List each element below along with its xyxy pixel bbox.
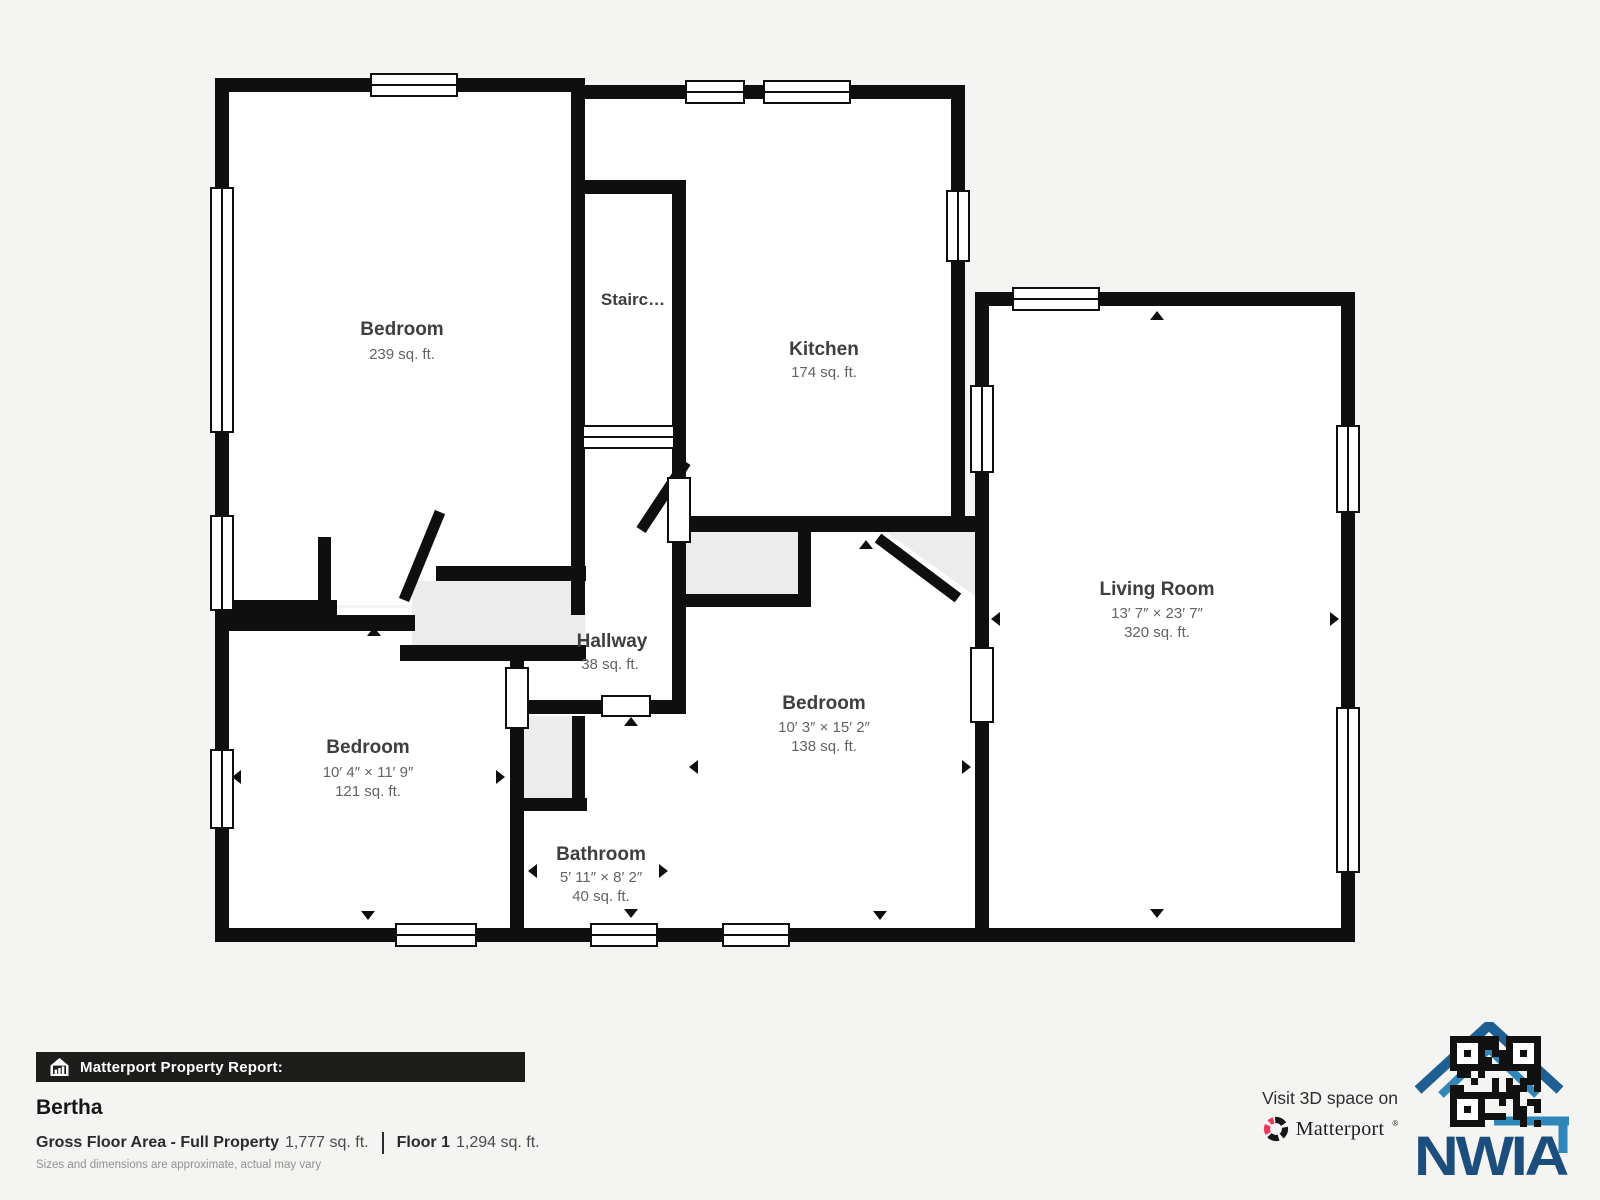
- gross-area-value: 1,777 sq. ft.: [285, 1134, 369, 1152]
- floor1-value: 1,294 sq. ft.: [456, 1134, 540, 1152]
- svg-text:Bathroom: Bathroom: [556, 844, 646, 865]
- svg-text:239 sq. ft.: 239 sq. ft.: [369, 346, 435, 363]
- svg-text:13′ 7″ × 23′ 7″: 13′ 7″ × 23′ 7″: [1111, 605, 1203, 622]
- report-title-bar: Matterport Property Report:: [36, 1052, 525, 1082]
- room-interiors: [222, 85, 1348, 935]
- svg-text:320 sq. ft.: 320 sq. ft.: [1124, 624, 1190, 641]
- property-name: Bertha: [36, 1096, 103, 1120]
- floorplan-canvas: Bedroom 239 sq. ft. Stairc… Kitchen 174 …: [0, 0, 1600, 1200]
- nwia-wordmark: NWIA: [1414, 1124, 1568, 1186]
- svg-text:5′ 11″ × 8′ 2″: 5′ 11″ × 8′ 2″: [560, 869, 643, 886]
- svg-text:Hallway: Hallway: [577, 631, 648, 652]
- registered-mark: ®: [1392, 1119, 1398, 1128]
- svg-text:40 sq. ft.: 40 sq. ft.: [572, 888, 630, 905]
- matterport-wordmark: Matterport: [1296, 1118, 1385, 1141]
- room-label-bedroom-mid: Bedroom 10′ 3″ × 15′ 2″ 138 sq. ft.: [778, 693, 870, 755]
- divider: [382, 1132, 384, 1154]
- area-summary: Gross Floor Area - Full Property 1,777 s…: [36, 1132, 540, 1154]
- nwia-logo[interactable]: NWIA: [1410, 1022, 1570, 1186]
- house-chart-icon: [49, 1057, 70, 1077]
- svg-text:Kitchen: Kitchen: [789, 339, 859, 360]
- disclaimer-text: Sizes and dimensions are approximate, ac…: [36, 1159, 321, 1171]
- floor1-label: Floor 1: [397, 1134, 450, 1152]
- matterport-promo: Visit 3D space on Matterport®: [1240, 1088, 1420, 1142]
- svg-text:38 sq. ft.: 38 sq. ft.: [581, 656, 639, 673]
- matterport-icon: [1263, 1116, 1289, 1142]
- report-bar-label: Matterport Property Report:: [80, 1059, 283, 1076]
- room-label-bedroom-bl: Bedroom 10′ 4″ × 11′ 9″ 121 sq. ft.: [323, 737, 414, 800]
- room-label-staircase: Stairc…: [601, 290, 665, 309]
- svg-text:174 sq. ft.: 174 sq. ft.: [791, 364, 857, 381]
- visit-3d-text: Visit 3D space on: [1240, 1088, 1420, 1109]
- svg-text:Bedroom: Bedroom: [782, 693, 865, 714]
- svg-text:10′ 3″ × 15′ 2″: 10′ 3″ × 15′ 2″: [778, 719, 870, 736]
- svg-text:121 sq. ft.: 121 sq. ft.: [335, 783, 401, 800]
- matterport-logo[interactable]: Matterport®: [1240, 1116, 1420, 1142]
- qr-code: [1450, 1036, 1541, 1127]
- svg-text:Bedroom: Bedroom: [326, 737, 409, 758]
- svg-text:Stairc…: Stairc…: [601, 290, 665, 309]
- gross-area-label: Gross Floor Area - Full Property: [36, 1134, 279, 1152]
- svg-text:138 sq. ft.: 138 sq. ft.: [791, 738, 857, 755]
- svg-text:Living Room: Living Room: [1099, 579, 1214, 600]
- svg-text:10′ 4″ × 11′ 9″: 10′ 4″ × 11′ 9″: [323, 764, 414, 781]
- svg-text:Bedroom: Bedroom: [360, 319, 443, 340]
